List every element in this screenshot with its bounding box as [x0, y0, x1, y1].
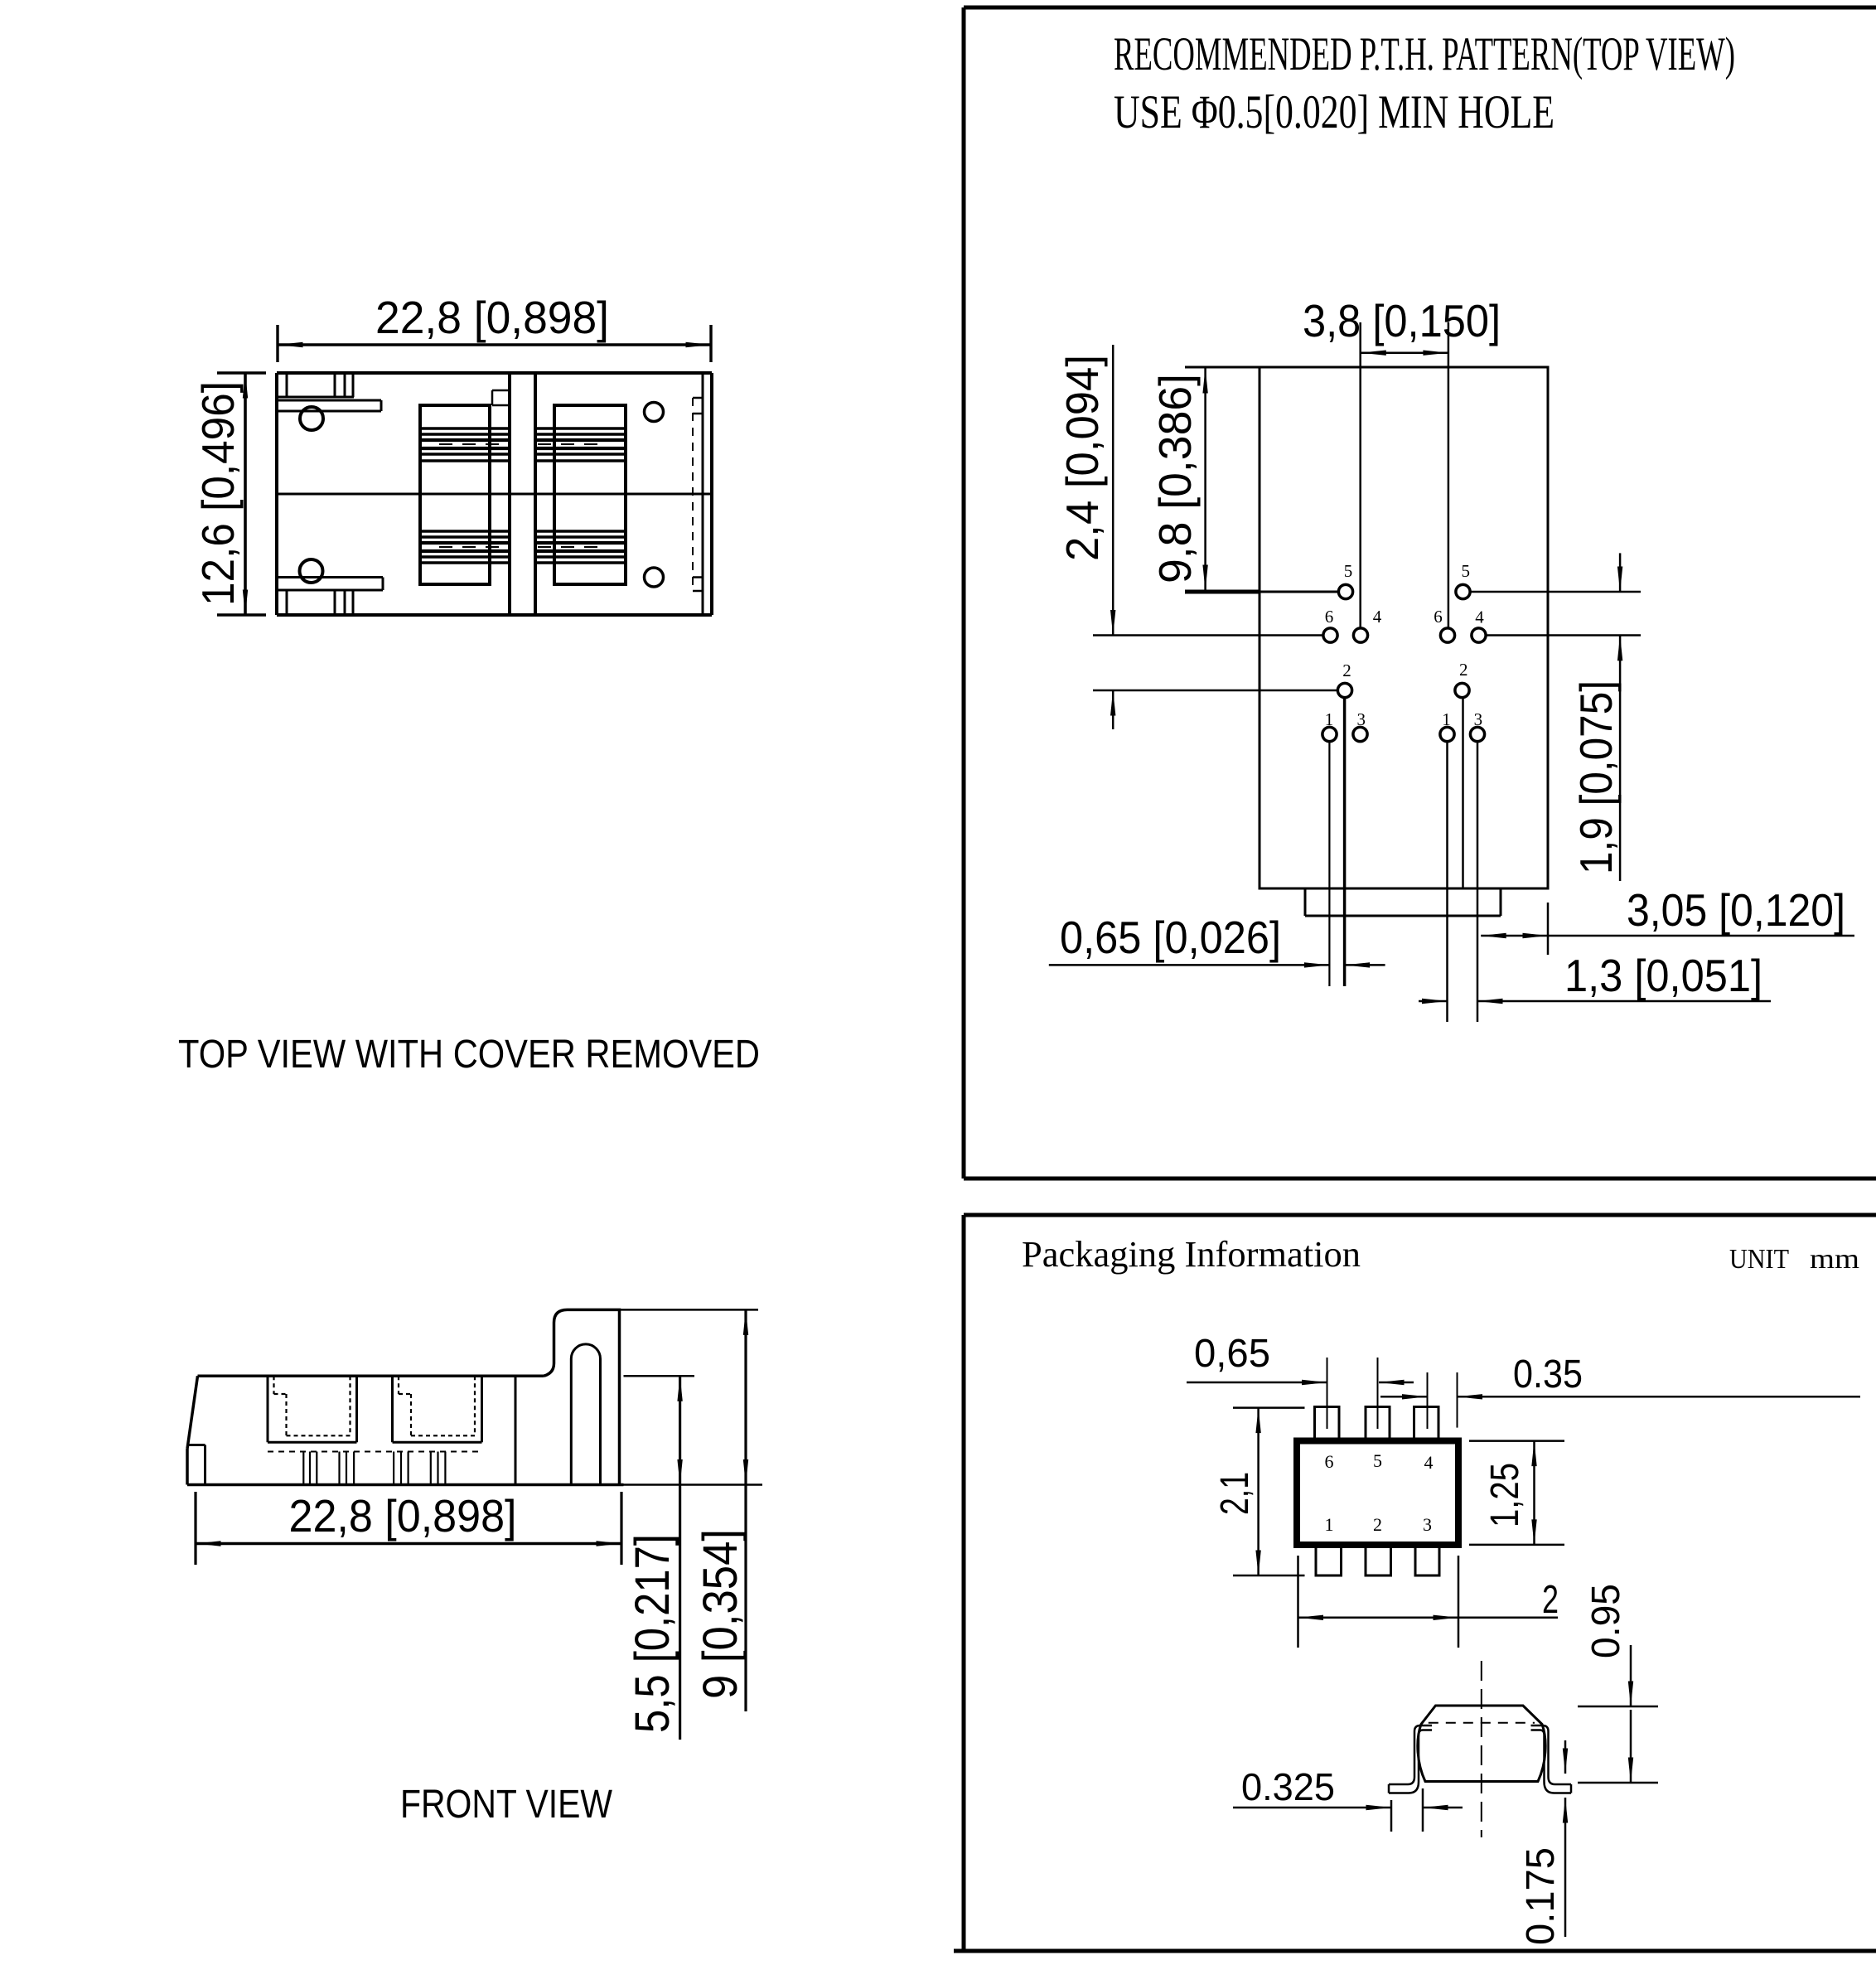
svg-text:0.325: 0.325 [1241, 1765, 1335, 1808]
svg-text:22,8 [0,898]: 22,8 [0,898] [375, 292, 609, 343]
svg-text:1: 1 [1325, 1514, 1334, 1535]
svg-text:5: 5 [1461, 561, 1470, 581]
svg-text:RECOMMENDED P.T.H. PATTERN(TOP: RECOMMENDED P.T.H. PATTERN(TOP VIEW) [1114, 28, 1735, 80]
svg-text:3,05 [0,120]: 3,05 [0,120] [1627, 884, 1845, 936]
svg-text:9 [0,354]: 9 [0,354] [694, 1529, 747, 1699]
svg-text:0.35: 0.35 [1513, 1353, 1583, 1396]
svg-text:0.175: 0.175 [1519, 1847, 1563, 1945]
svg-text:12,6 [0,496]: 12,6 [0,496] [192, 381, 244, 606]
svg-text:USE Φ0.5[0.020] MIN HOLE: USE Φ0.5[0.020] MIN HOLE [1114, 86, 1554, 138]
svg-text:0,65: 0,65 [1194, 1332, 1270, 1376]
svg-text:TOP VIEW WITH COVER REMOVED: TOP VIEW WITH COVER REMOVED [178, 1033, 760, 1077]
svg-text:3: 3 [1423, 1514, 1432, 1535]
svg-text:2,1: 2,1 [1213, 1472, 1257, 1515]
svg-text:9,8 [0,386]: 9,8 [0,386] [1149, 374, 1201, 583]
svg-text:3: 3 [1357, 709, 1366, 729]
svg-text:1,9 [0,075]: 1,9 [0,075] [1570, 680, 1622, 874]
svg-text:6: 6 [1434, 607, 1443, 627]
svg-text:4: 4 [1373, 607, 1382, 627]
svg-text:4: 4 [1475, 607, 1484, 627]
svg-text:2: 2 [1373, 1514, 1382, 1535]
svg-text:2: 2 [1342, 661, 1351, 680]
svg-text:1,3 [0,051]: 1,3 [0,051] [1564, 950, 1762, 1001]
svg-text:3: 3 [1474, 709, 1483, 729]
svg-text:2,4 [0,094]: 2,4 [0,094] [1056, 355, 1108, 561]
svg-text:0,65 [0,026]: 0,65 [0,026] [1060, 912, 1281, 963]
svg-text:2: 2 [1459, 660, 1468, 680]
svg-text:1: 1 [1325, 709, 1334, 729]
svg-text:3,8 [0,150]: 3,8 [0,150] [1303, 295, 1501, 346]
svg-text:5,5 [0,217]: 5,5 [0,217] [626, 1534, 679, 1733]
svg-text:UNIT: UNIT [1729, 1244, 1789, 1275]
svg-text:0.95: 0.95 [1584, 1584, 1628, 1658]
svg-text:mm: mm [1810, 1244, 1859, 1275]
svg-text:5: 5 [1373, 1450, 1382, 1471]
svg-text:1,25: 1,25 [1483, 1463, 1527, 1527]
svg-text:6: 6 [1325, 1451, 1334, 1472]
svg-text:2: 2 [1542, 1578, 1559, 1622]
svg-text:4: 4 [1424, 1452, 1434, 1473]
svg-text:5: 5 [1344, 561, 1353, 581]
svg-text:1: 1 [1442, 709, 1451, 729]
svg-text:Packaging Information: Packaging Information [1022, 1234, 1361, 1275]
svg-text:FRONT VIEW: FRONT VIEW [400, 1783, 613, 1827]
svg-text:6: 6 [1325, 607, 1334, 627]
svg-text:22,8 [0,898]: 22,8 [0,898] [289, 1490, 517, 1542]
